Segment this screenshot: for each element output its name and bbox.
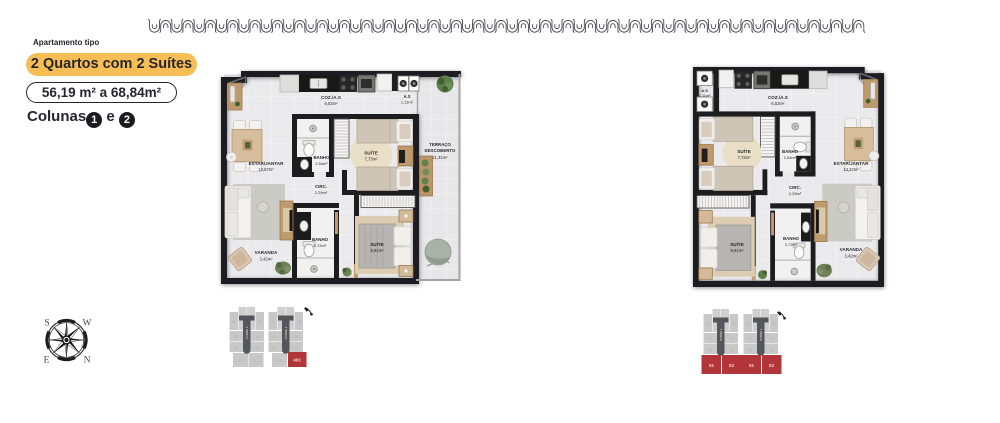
svg-text:07: 07 [232, 320, 236, 324]
svg-text:01: 01 [278, 359, 282, 363]
svg-text:06: 06 [730, 337, 734, 341]
svg-text:04: 04 [770, 348, 774, 352]
svg-text:S: S [44, 319, 49, 329]
svg-text:08: 08 [772, 322, 776, 326]
svg-text:02: 02 [729, 363, 735, 368]
svg-text:TORRE 1: TORRE 1 [245, 326, 249, 339]
svg-text:05: 05 [234, 335, 238, 339]
svg-text:01: 01 [239, 359, 243, 363]
svg-text:TORRE 1: TORRE 1 [759, 328, 763, 341]
svg-text:04: 04 [295, 346, 299, 350]
svg-text:TORRE 1: TORRE 1 [284, 326, 288, 339]
svg-text:03: 03 [708, 348, 712, 352]
svg-text:07: 07 [271, 320, 275, 324]
svg-text:06: 06 [770, 337, 774, 341]
svg-text:05: 05 [748, 337, 752, 341]
svg-text:W: W [83, 319, 92, 329]
svg-text:04: 04 [256, 346, 260, 350]
svg-text:04: 04 [730, 348, 734, 352]
svg-text:03: 03 [234, 346, 238, 350]
svg-text:E: E [44, 356, 50, 366]
svg-text:02: 02 [769, 363, 775, 368]
svg-text:03: 03 [748, 348, 752, 352]
svg-text:06: 06 [256, 335, 260, 339]
svg-text:N: N [84, 356, 91, 366]
svg-text:08: 08 [297, 320, 301, 324]
svg-text:08: 08 [732, 322, 736, 326]
svg-text:01: 01 [749, 363, 755, 368]
svg-text:01: 01 [709, 363, 715, 368]
svg-text:06: 06 [295, 335, 299, 339]
svg-text:402: 402 [293, 358, 301, 363]
svg-text:07: 07 [746, 322, 750, 326]
svg-text:08: 08 [258, 320, 262, 324]
svg-text:03: 03 [273, 346, 277, 350]
svg-text:02: 02 [254, 359, 258, 363]
svg-text:07: 07 [706, 322, 710, 326]
svg-text:TORRE 1: TORRE 1 [719, 328, 723, 341]
svg-text:05: 05 [708, 337, 712, 341]
svg-text:05: 05 [273, 335, 277, 339]
